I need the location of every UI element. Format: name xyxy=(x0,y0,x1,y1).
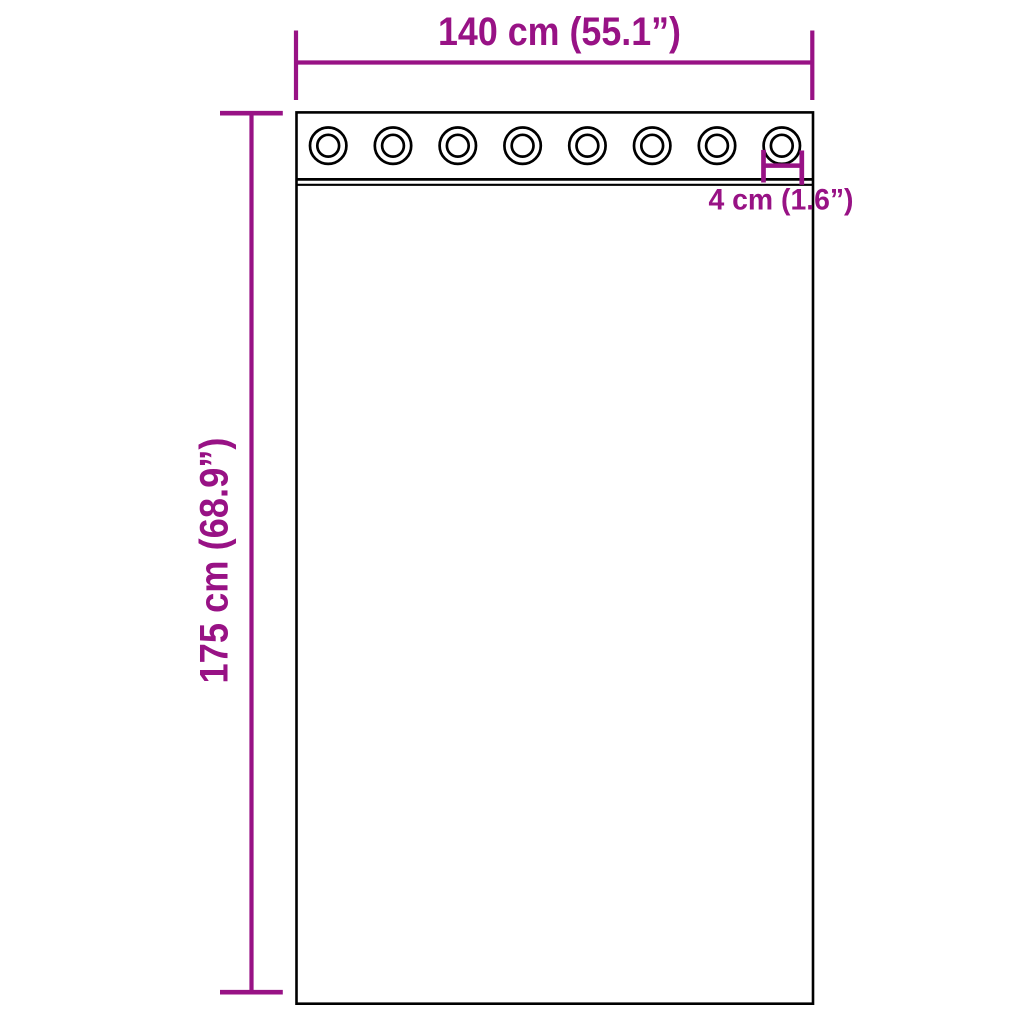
svg-text:4 cm (1.6”): 4 cm (1.6”) xyxy=(709,184,854,217)
svg-text:175 cm (68.9”): 175 cm (68.9”) xyxy=(193,438,237,684)
svg-text:140 cm (55.1”): 140 cm (55.1”) xyxy=(438,10,681,54)
